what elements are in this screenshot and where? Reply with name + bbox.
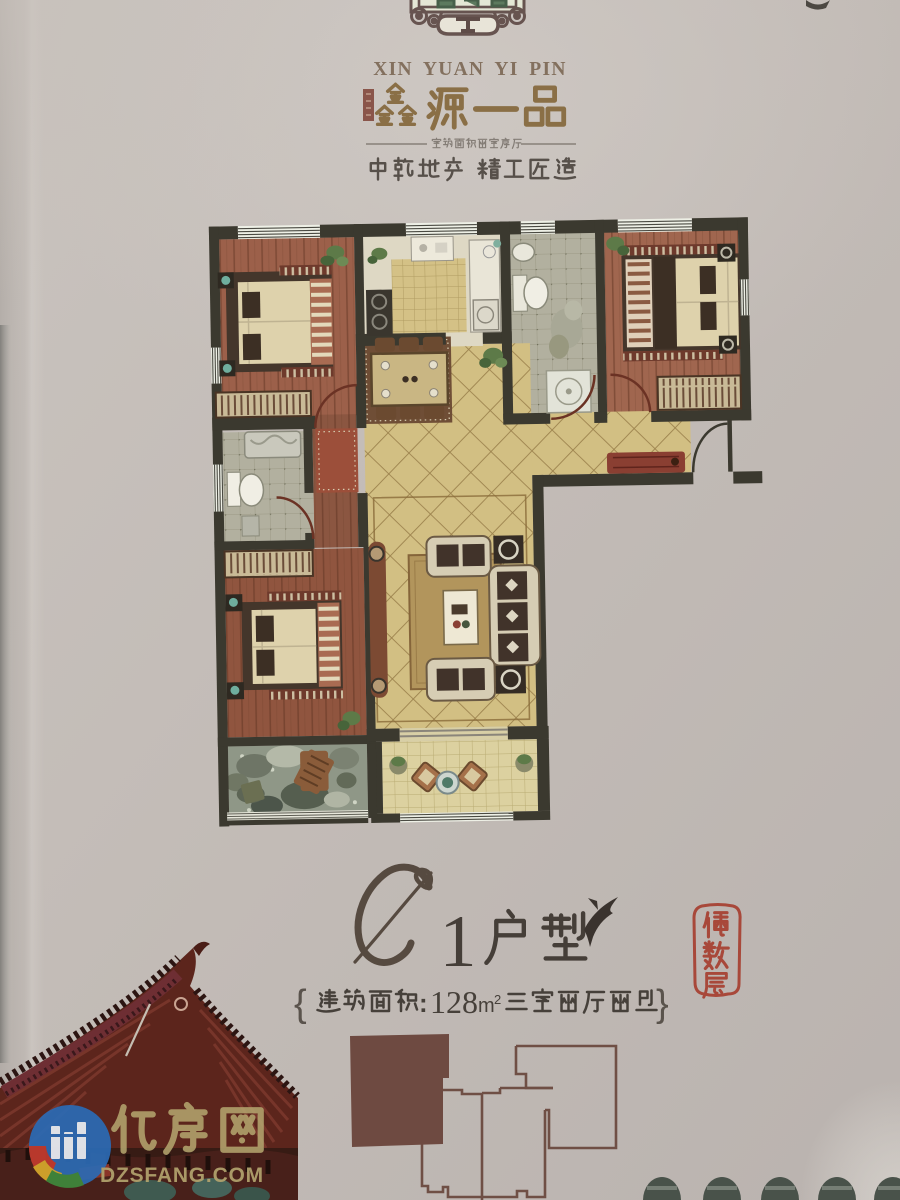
svg-text::: : [419,988,428,1018]
svg-text:}: } [656,983,669,1025]
svg-text:XIN YUAN YI PIN: XIN YUAN YI PIN [373,59,567,80]
svg-text:DZSFANG.COM: DZSFANG.COM [100,1164,264,1187]
svg-text:{: { [294,983,307,1025]
svg-text:m: m [478,995,495,1017]
svg-text:2: 2 [494,992,501,1007]
svg-text:1: 1 [440,901,477,983]
svg-text:128: 128 [430,984,478,1020]
